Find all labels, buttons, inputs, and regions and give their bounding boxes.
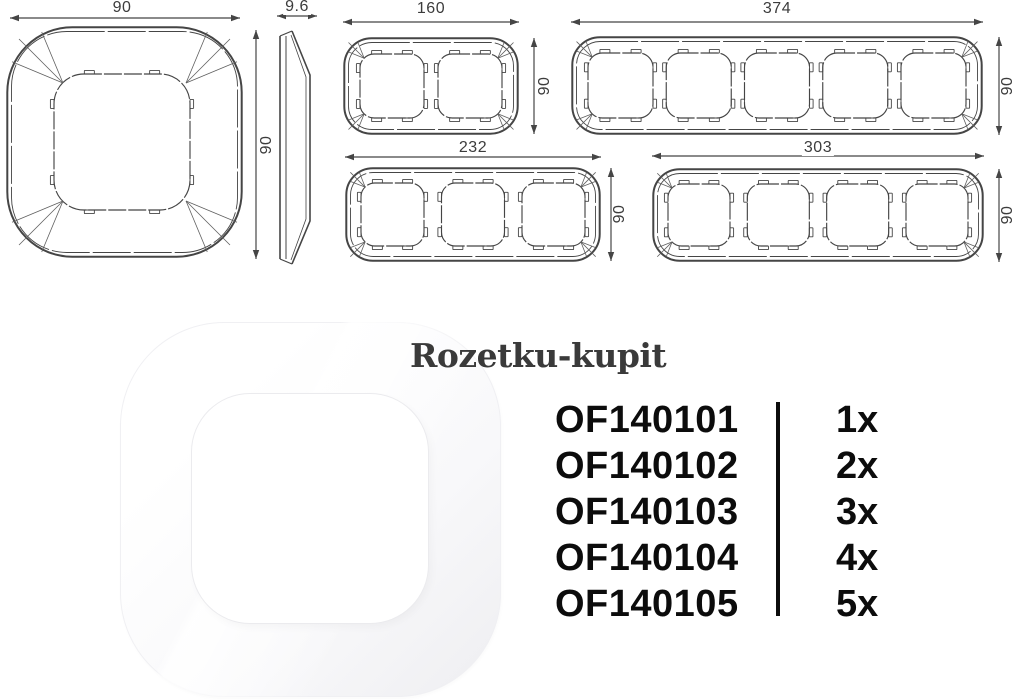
product-row: OF140101 1x [555,397,975,443]
product-row: OF140104 4x [555,535,975,581]
table-divider-line [776,402,780,616]
product-row: OF140103 3x [555,489,975,535]
product-code-list: OF140101 1x OF140102 2x OF140103 3x OF14… [555,397,975,627]
dim-4gang-height: 90 [1000,204,1016,227]
dim-front-height: 90 [259,134,275,157]
product-qty: 2x [806,447,878,485]
product-code: OF140104 [555,539,806,577]
dim-5gang-height: 90 [1000,75,1016,98]
drawing-side-profile [278,29,312,265]
product-code: OF140105 [555,585,806,623]
product-qty: 4x [806,539,878,577]
product-row: OF140105 5x [555,581,975,627]
photo-frame-window [192,394,428,623]
product-qty: 5x [806,585,878,623]
product-photo-1gang-white-frame [120,322,501,697]
drawing-1gang-front-view [6,26,243,258]
product-code: OF140102 [555,447,806,485]
dim-3gang-height: 90 [612,203,628,226]
product-qty: 3x [806,493,878,531]
dim-5gang-width: 374 [761,1,793,17]
dim-3gang-width: 232 [457,140,489,156]
dim-2gang-height: 90 [537,75,553,98]
drawing-3gang-frame [345,167,601,262]
page: 90 90 9.6 160 90 374 90 232 90 303 90 Ro… [0,0,1018,700]
drawing-4gang-frame [652,168,984,262]
drawing-5gang-frame [571,36,983,135]
product-qty: 1x [806,401,878,439]
product-code: OF140103 [555,493,806,531]
product-row: OF140102 2x [555,443,975,489]
product-code: OF140101 [555,401,806,439]
dim-4gang-width: 303 [802,140,834,156]
dim-front-width: 90 [111,0,134,16]
watermark-title: Rozetku-kupit [410,336,666,376]
dim-2gang-width: 160 [415,1,447,17]
dim-side-thickness: 9.6 [283,0,311,15]
drawing-2gang-frame [343,37,519,135]
